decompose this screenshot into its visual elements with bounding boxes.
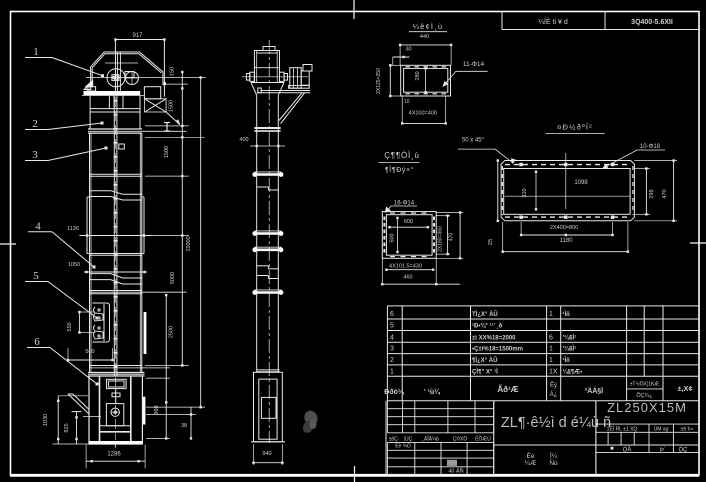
svg-text:±ì XX%18=2000: ±ì XX%18=2000 [472, 335, 516, 341]
svg-text:ÓÇ: ÓÇ [679, 447, 689, 454]
svg-text:¤Ð½ðºÍ²: ¤Ð½ðºÍ² [557, 123, 593, 132]
svg-text:2X180=360: 2X180=360 [438, 226, 444, 252]
svg-text:' ¹ù¼: ' ¹ù¼ [424, 388, 441, 396]
svg-text:Éè: Éè [527, 451, 535, 460]
svg-text:15000: 15000 [186, 236, 192, 251]
svg-text:1286: 1286 [107, 452, 121, 458]
svg-text:30: 30 [405, 47, 411, 53]
svg-text:±h h»: ±h h» [681, 427, 694, 433]
svg-text:’¼6Ì¹: ’¼6Ì¹ [563, 333, 577, 341]
svg-text:150: 150 [170, 67, 176, 76]
svg-text:Ñù: Ñù [549, 458, 558, 467]
svg-text:470: 470 [449, 233, 455, 242]
svg-text:6: 6 [549, 334, 553, 341]
svg-text:Ç©XÖ: Ç©XÖ [453, 435, 468, 442]
svg-text:2X400=800: 2X400=800 [550, 225, 578, 231]
svg-text:500: 500 [390, 233, 396, 242]
svg-text:280: 280 [415, 71, 421, 80]
svg-text:Ððò¼: Ððò¼ [384, 388, 405, 396]
svg-text:470: 470 [662, 189, 668, 198]
svg-text:¼ê¢Ì¸ù: ¼ê¢Ì¸ù [413, 22, 444, 31]
svg-text:ZL250X15M: ZL250X15M [607, 400, 687, 415]
svg-text:1180: 1180 [560, 238, 574, 244]
svg-text:4X101.5=430: 4X101.5=430 [389, 264, 422, 270]
svg-text:TÌ¿X° ÀÛ: TÌ¿X° ÀÛ [472, 310, 498, 318]
svg-text:ÇÌ¶” X° ¹Ì: ÇÌ¶” X° ¹Ì [472, 367, 498, 375]
svg-text:2500: 2500 [169, 326, 175, 338]
svg-text:40 ÀÑ: 40 ÀÑ [448, 468, 463, 475]
svg-text:ÙM ag: ÙM ag [654, 426, 669, 433]
svg-text:400: 400 [239, 137, 248, 143]
svg-text:¶Ï¿X° ÀÛ: ¶Ï¿X° ÀÛ [472, 357, 497, 364]
svg-text:50 x 45°: 50 x 45° [462, 138, 485, 144]
svg-text:¼Æ: ¼Æ [525, 460, 537, 467]
svg-text:960: 960 [154, 405, 160, 414]
svg-text:1: 1 [549, 357, 553, 364]
svg-text:¦ÚÇ: ¦ÚÇ [404, 435, 413, 442]
svg-text:10: 10 [404, 99, 410, 105]
svg-text:Êý: Êý [550, 381, 557, 389]
svg-text:1500: 1500 [169, 100, 175, 112]
svg-text:¼ÍÈ ti ¥ d: ¼ÍÈ ti ¥ d [538, 17, 568, 26]
svg-text:Á¿: Á¿ [550, 391, 558, 398]
svg-text:¹Ìõ: ¹Ìõ [563, 356, 571, 364]
svg-text:ÕÇ¼¿: ÕÇ¼¿ [636, 392, 652, 399]
svg-text:310: 310 [522, 188, 528, 197]
svg-text:1136: 1136 [67, 226, 79, 232]
svg-text:1ÈÎ RL ±1 XQ: 1ÈÎ RL ±1 XQ [607, 426, 638, 433]
svg-text:¶Ì¶Ðý×°: ¶Ì¶Ðý×° [385, 165, 414, 174]
svg-text:460: 460 [403, 275, 412, 281]
svg-text:4: 4 [35, 221, 41, 233]
svg-text:1: 1 [549, 346, 553, 353]
svg-text:Éè ¾Ó: Éè ¾Ó [395, 443, 411, 450]
svg-text:2: 2 [390, 357, 394, 364]
svg-text:38: 38 [181, 423, 187, 429]
svg-text:5: 5 [33, 270, 39, 282]
svg-text:600: 600 [404, 219, 413, 225]
svg-text:6: 6 [390, 311, 394, 318]
svg-text:ÓÅ: ÓÅ [623, 447, 632, 454]
svg-text:Ãð¹Æ: Ãð¹Æ [497, 385, 518, 394]
svg-text:•Ç±ì%18=1500mm: •Ç±ì%18=1500mm [472, 347, 523, 353]
svg-text:940: 940 [262, 451, 271, 457]
svg-text:5000: 5000 [170, 272, 176, 284]
svg-text:10-Φ18: 10-Φ18 [640, 144, 661, 150]
svg-text:Ç¶¶ÓÌ¸ù: Ç¶¶ÓÌ¸ù [384, 151, 420, 160]
svg-text:1500: 1500 [164, 146, 170, 158]
svg-text:¹Ð•¾° ¹¹’ ¸ð: ¹Ð•¾° ¹¹’ ¸ð [472, 323, 502, 330]
svg-text:±T½ÖX¦1KÆ: ±T½ÖX¦1KÆ [630, 381, 660, 388]
svg-text:1: 1 [549, 311, 553, 318]
svg-text:917: 917 [132, 33, 143, 39]
svg-text:3: 3 [32, 149, 38, 161]
svg-text:ÈÕÆÚ: ÈÕÆÚ [475, 435, 491, 442]
svg-text:²ÄÁ§Ï: ²ÄÁ§Ï [585, 386, 604, 395]
svg-text:298: 298 [649, 189, 655, 198]
svg-text:825: 825 [64, 423, 70, 432]
svg-text:ZL¶·ê½ì d é¼ù ñ: ZL¶·ê½ì d é¼ù ñ [501, 415, 611, 431]
svg-text:1030: 1030 [43, 414, 49, 426]
svg-text:Þ´: Þ´ [660, 448, 666, 454]
svg-text:500: 500 [85, 349, 94, 355]
svg-text:3Q400-5.6XII: 3Q400-5.6XII [631, 19, 673, 26]
svg-text:2: 2 [32, 118, 38, 130]
svg-text:2X125=250: 2X125=250 [376, 68, 382, 94]
svg-text:1X: 1X [549, 368, 558, 375]
svg-text:1: 1 [33, 46, 39, 58]
svg-text:,¸ÄÎÄ¼þ: ,¸ÄÎÄ¼þ [421, 435, 439, 442]
svg-text:Í¼: Í¼ [550, 451, 558, 460]
svg-text:1050: 1050 [68, 262, 80, 268]
svg-text:1098: 1098 [574, 180, 588, 186]
svg-text:’¼6Ì¹: ’¼6Ì¹ [563, 345, 577, 353]
svg-text:4: 4 [390, 334, 394, 341]
svg-text:1: 1 [390, 368, 394, 375]
svg-text:¹Ìõ: ¹Ìõ [563, 310, 571, 318]
svg-text:±ðÇ·: ±ðÇ· [389, 435, 400, 442]
svg-text:3: 3 [390, 346, 394, 353]
svg-text:6: 6 [34, 336, 40, 348]
svg-text:±,X¢: ±,X¢ [677, 384, 692, 393]
svg-text:5: 5 [390, 323, 394, 330]
svg-text:550: 550 [67, 322, 73, 331]
svg-text:¼§¶Æ•: ¼§¶Æ• [563, 368, 583, 375]
svg-text:440: 440 [420, 34, 429, 40]
svg-text:4X100=400: 4X100=400 [409, 111, 437, 117]
svg-text:25: 25 [488, 239, 494, 245]
svg-text:11-Φ14: 11-Φ14 [463, 61, 485, 68]
